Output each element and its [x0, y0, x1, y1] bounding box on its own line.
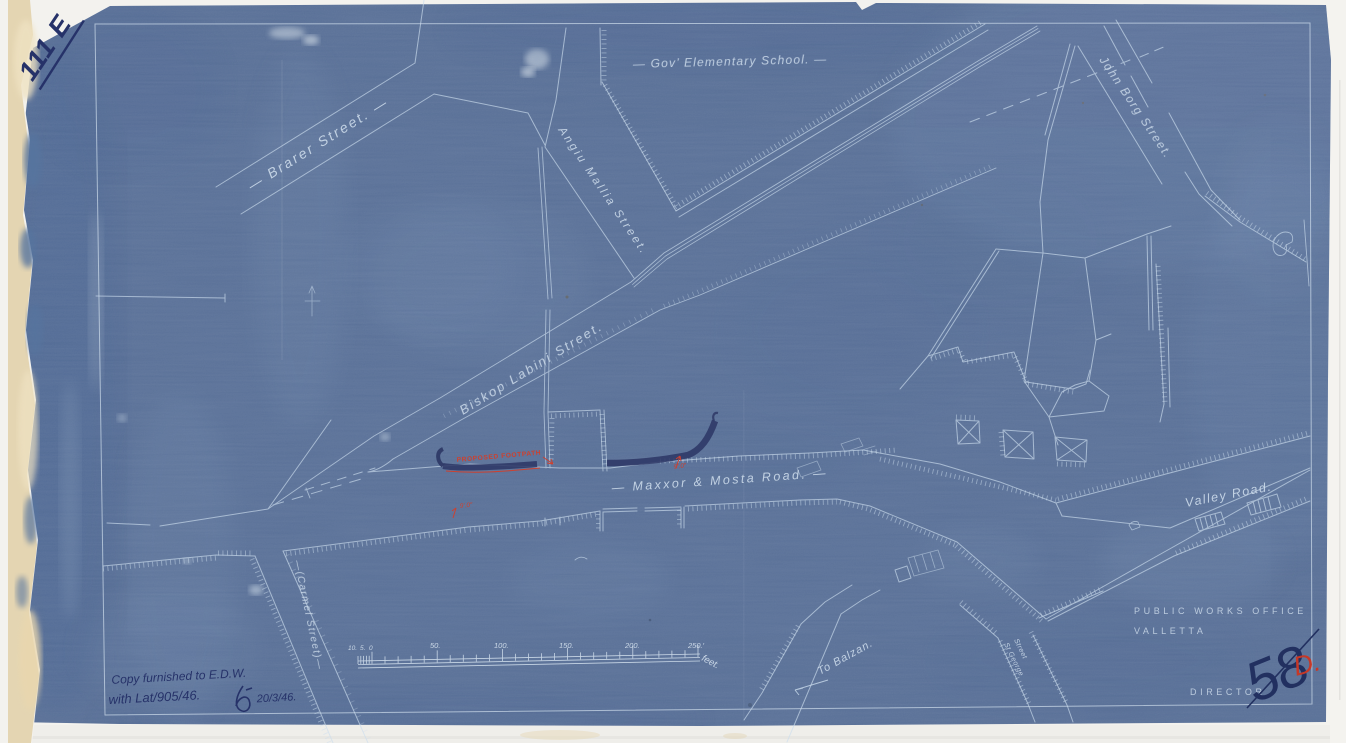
svg-text:5.: 5.	[360, 645, 366, 652]
svg-text:10.: 10.	[348, 645, 357, 652]
svg-text:0: 0	[369, 645, 373, 652]
svg-text:9′.0″: 9′.0″	[459, 502, 473, 510]
svg-text:VALLETTA: VALLETTA	[1134, 626, 1206, 636]
svg-text:50.: 50.	[430, 641, 440, 650]
svg-text:20/3/46.: 20/3/46.	[255, 691, 296, 705]
svg-text:PUBLIC WORKS OFFICE: PUBLIC WORKS OFFICE	[1134, 606, 1307, 616]
svg-text:200.: 200.	[624, 641, 640, 650]
svg-text:100.: 100.	[494, 641, 509, 650]
svg-text:250.′: 250.′	[687, 641, 705, 650]
svg-text:150.: 150.	[559, 641, 574, 650]
